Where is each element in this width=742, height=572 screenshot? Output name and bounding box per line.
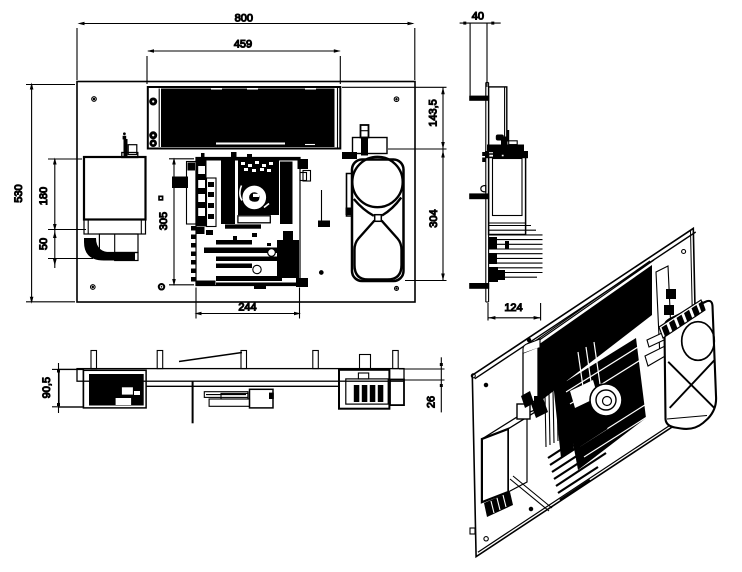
svg-text:50: 50: [38, 238, 50, 250]
svg-text:530: 530: [13, 184, 25, 202]
svg-text:26: 26: [426, 396, 438, 408]
svg-text:305: 305: [158, 212, 170, 230]
svg-text:180: 180: [38, 187, 50, 205]
svg-text:459: 459: [234, 39, 252, 51]
svg-text:90,5: 90,5: [41, 377, 53, 398]
svg-text:143,5: 143,5: [428, 99, 440, 127]
svg-text:244: 244: [238, 302, 256, 314]
svg-text:304: 304: [428, 209, 440, 227]
svg-text:40: 40: [472, 11, 484, 23]
svg-text:124: 124: [504, 302, 522, 314]
svg-text:800: 800: [235, 13, 253, 25]
